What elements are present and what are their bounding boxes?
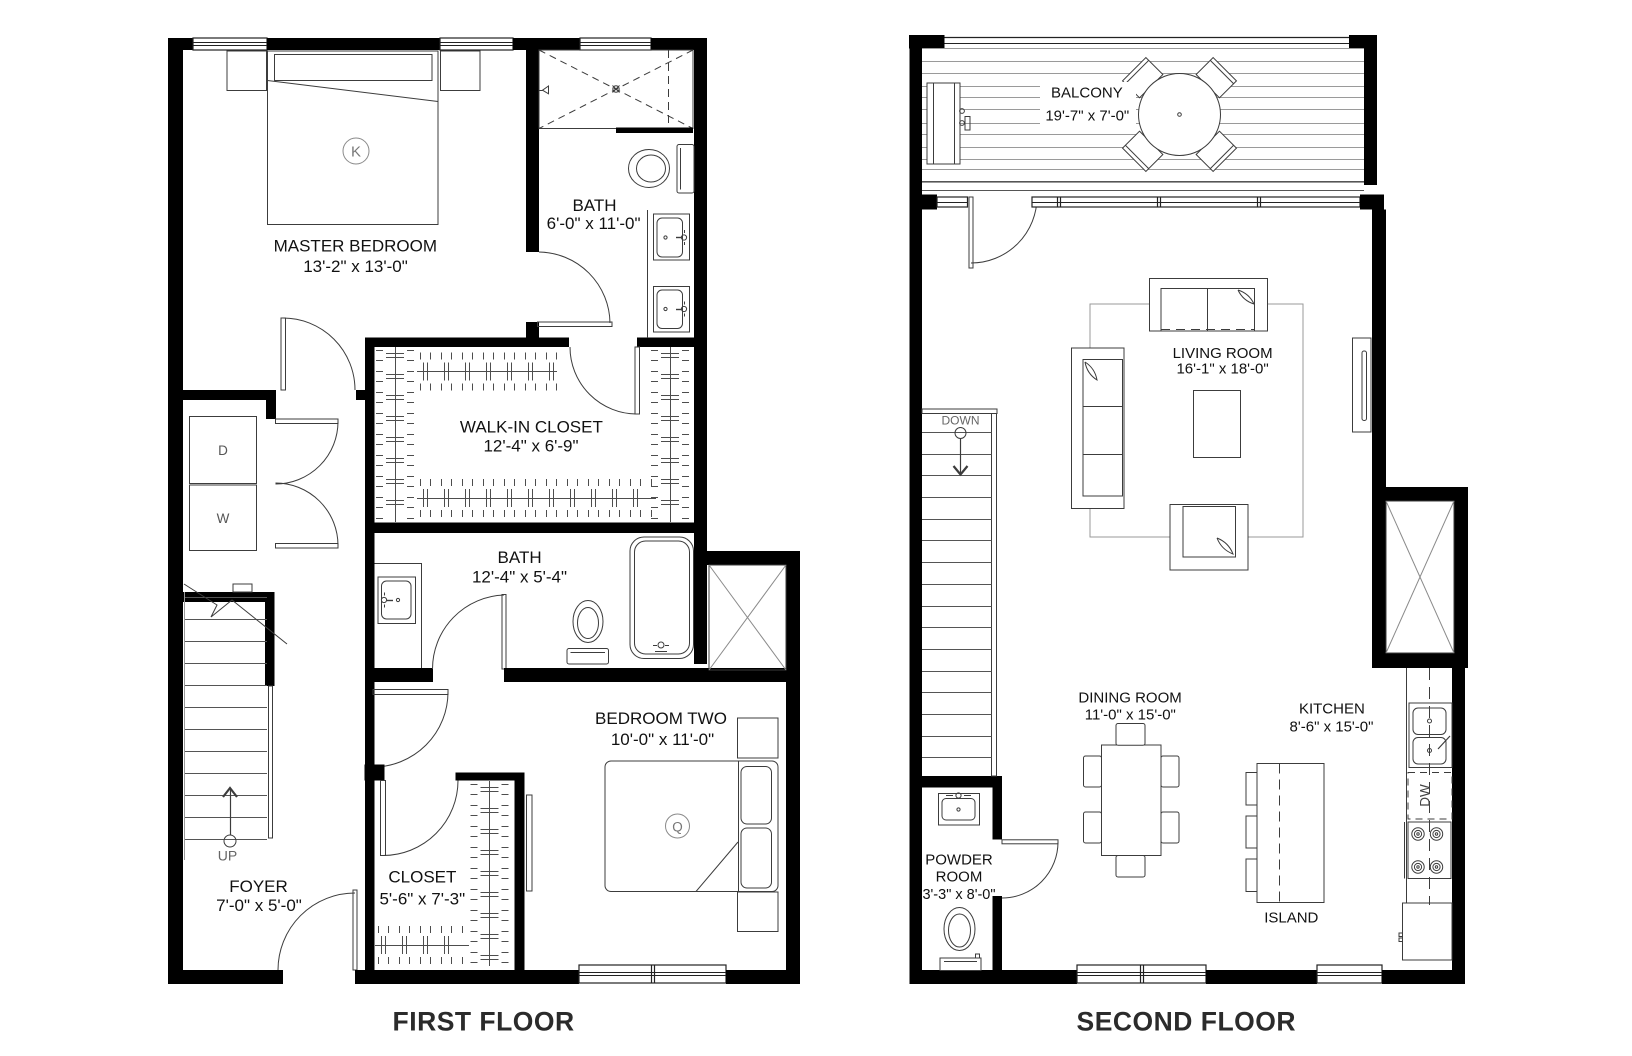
svg-text:BEDROOM TWO: BEDROOM TWO	[595, 709, 727, 728]
svg-text:BATH: BATH	[572, 196, 616, 215]
svg-text:Q: Q	[672, 820, 683, 835]
svg-text:LIVING ROOM: LIVING ROOM	[1173, 345, 1273, 362]
svg-text:FOYER: FOYER	[229, 877, 288, 896]
svg-text:SECOND FLOOR: SECOND FLOOR	[1077, 1007, 1296, 1037]
svg-text:19'-7" x 7'-0": 19'-7" x 7'-0"	[1045, 107, 1129, 124]
svg-text:POWDER: POWDER	[925, 852, 993, 869]
svg-text:6'-0" x 11'-0": 6'-0" x 11'-0"	[547, 214, 641, 233]
svg-text:7'-0" x 5'-0": 7'-0" x 5'-0"	[216, 896, 302, 915]
svg-text:CLOSET: CLOSET	[388, 867, 456, 886]
svg-text:DINING ROOM: DINING ROOM	[1078, 690, 1181, 707]
svg-text:D: D	[218, 443, 228, 458]
svg-text:ROOM: ROOM	[936, 869, 983, 886]
svg-text:BATH: BATH	[498, 548, 542, 567]
svg-text:MASTER BEDROOM: MASTER BEDROOM	[274, 237, 437, 256]
svg-text:12'-4" x 5'-4": 12'-4" x 5'-4"	[472, 568, 567, 587]
svg-text:DOWN: DOWN	[942, 414, 980, 428]
svg-text:DW: DW	[1418, 784, 1433, 807]
svg-text:KITCHEN: KITCHEN	[1299, 700, 1365, 717]
svg-text:BALCONY: BALCONY	[1051, 85, 1123, 102]
svg-text:16'-1" x 18'-0": 16'-1" x 18'-0"	[1176, 361, 1268, 378]
svg-text:W: W	[217, 511, 230, 526]
svg-text:5'-6" x 7'-3": 5'-6" x 7'-3"	[379, 890, 465, 909]
svg-text:K: K	[351, 144, 361, 161]
svg-text:WALK-IN CLOSET: WALK-IN CLOSET	[460, 418, 603, 437]
svg-text:10'-0" x 11'-0": 10'-0" x 11'-0"	[611, 730, 714, 749]
svg-text:13'-2" x 13'-0": 13'-2" x 13'-0"	[303, 257, 408, 276]
svg-text:FIRST FLOOR: FIRST FLOOR	[393, 1007, 575, 1037]
svg-text:ISLAND: ISLAND	[1264, 909, 1318, 926]
svg-text:11'-0" x 15'-0": 11'-0" x 15'-0"	[1085, 707, 1176, 724]
svg-text:3'-3" x 8'-0": 3'-3" x 8'-0"	[922, 887, 995, 903]
svg-text:12'-4" x 6'-9": 12'-4" x 6'-9"	[483, 436, 578, 455]
svg-text:8'-6" x 15'-0": 8'-6" x 15'-0"	[1290, 718, 1374, 735]
svg-text:UP: UP	[218, 848, 237, 864]
